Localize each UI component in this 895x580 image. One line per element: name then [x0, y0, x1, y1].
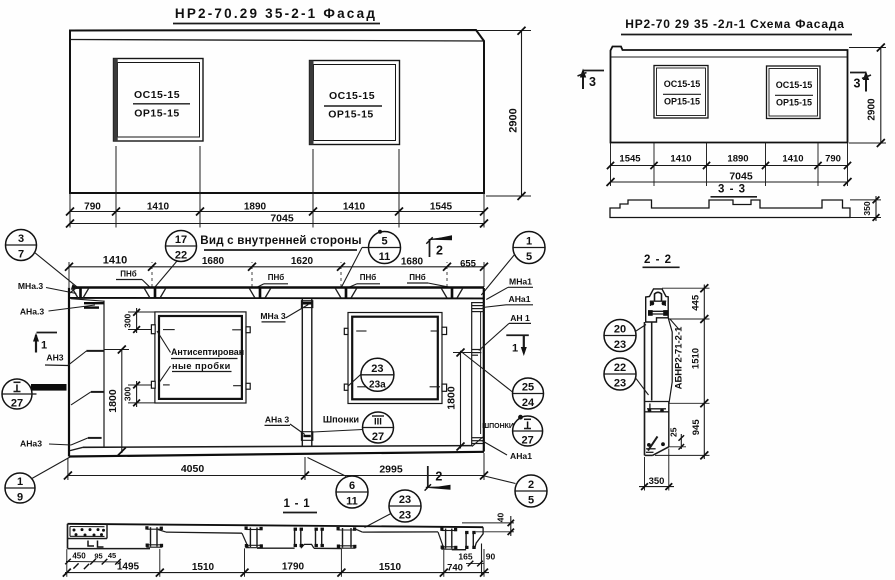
- svg-text:5: 5: [381, 236, 387, 248]
- svg-text:945: 945: [691, 419, 702, 436]
- svg-text:3: 3: [18, 233, 24, 245]
- svg-text:655: 655: [460, 259, 477, 270]
- svg-text:МНа 3: МНа 3: [260, 311, 286, 321]
- svg-text:350: 350: [649, 476, 665, 487]
- svg-text:27: 27: [372, 431, 384, 443]
- svg-text:6: 6: [349, 480, 355, 492]
- svg-text:23: 23: [614, 339, 626, 351]
- svg-text:1890: 1890: [727, 154, 748, 165]
- svg-text:ПНб: ПНб: [360, 273, 377, 282]
- svg-text:1790: 1790: [282, 562, 305, 573]
- svg-text:790: 790: [825, 154, 841, 165]
- svg-text:АН 1: АН 1: [510, 313, 530, 323]
- svg-text:АНа1: АНа1: [510, 451, 532, 461]
- svg-text:2: 2: [435, 470, 442, 484]
- svg-text:23: 23: [399, 510, 411, 522]
- svg-text:1510: 1510: [192, 562, 215, 573]
- svg-text:1: 1: [17, 476, 23, 488]
- svg-text:ПНб: ПНб: [268, 273, 285, 282]
- svg-text:ПНб: ПНб: [120, 270, 137, 279]
- svg-text:1800: 1800: [446, 386, 458, 410]
- svg-text:23: 23: [399, 494, 411, 506]
- svg-text:3 - 3: 3 - 3: [718, 184, 746, 196]
- svg-text:17: 17: [175, 234, 187, 246]
- svg-text:11: 11: [346, 496, 358, 508]
- svg-text:90: 90: [486, 552, 496, 562]
- svg-text:9: 9: [17, 492, 23, 504]
- svg-text:I: I: [16, 382, 19, 394]
- svg-text:350: 350: [862, 201, 872, 215]
- svg-text:450: 450: [72, 552, 86, 561]
- svg-text:ПНб: ПНб: [409, 273, 426, 282]
- svg-text:I: I: [526, 419, 529, 431]
- svg-text:ШПОНКИ: ШПОНКИ: [482, 423, 514, 430]
- svg-text:24: 24: [522, 397, 535, 409]
- svg-text:40: 40: [496, 513, 506, 523]
- svg-text:2 - 2: 2 - 2: [644, 254, 672, 266]
- svg-text:1510: 1510: [379, 562, 402, 573]
- svg-text:1680: 1680: [202, 256, 225, 267]
- svg-text:1: 1: [41, 340, 47, 352]
- svg-text:1410: 1410: [670, 154, 691, 165]
- svg-text:1: 1: [526, 236, 532, 248]
- svg-text:1510: 1510: [691, 348, 702, 369]
- svg-text:7: 7: [18, 249, 24, 261]
- svg-text:445: 445: [691, 294, 702, 311]
- svg-text:НР2-70.29 35-2-1 Фасад: НР2-70.29 35-2-1 Фасад: [175, 6, 377, 21]
- svg-text:III: III: [374, 417, 382, 428]
- svg-text:1680: 1680: [401, 257, 424, 268]
- svg-text:ные пробки: ные пробки: [172, 361, 231, 371]
- svg-text:3: 3: [854, 77, 861, 91]
- svg-text:АНа3: АНа3: [20, 439, 42, 449]
- svg-text:1800: 1800: [107, 389, 119, 413]
- svg-text:1410: 1410: [147, 202, 170, 213]
- svg-text:23: 23: [371, 363, 383, 375]
- svg-text:АБНР2-71-2-1: АБНР2-71-2-1: [674, 326, 685, 390]
- svg-text:АНа1: АНа1: [509, 294, 531, 304]
- svg-text:23: 23: [614, 378, 626, 390]
- svg-text:27: 27: [521, 435, 533, 447]
- svg-text:5: 5: [526, 251, 532, 263]
- svg-text:1: 1: [512, 343, 518, 355]
- svg-text:МНа.3: МНа.3: [18, 281, 44, 291]
- svg-text:ОР15-15: ОР15-15: [328, 109, 374, 121]
- svg-text:ОР15-15: ОР15-15: [134, 108, 180, 120]
- svg-text:1410: 1410: [782, 154, 803, 165]
- svg-text:1 - 1: 1 - 1: [283, 498, 310, 510]
- svg-text:300: 300: [123, 387, 133, 401]
- svg-text:2900: 2900: [867, 98, 878, 121]
- svg-text:2900: 2900: [508, 108, 520, 132]
- svg-text:ОС15-15: ОС15-15: [134, 89, 180, 101]
- svg-text:АНа.3: АНа.3: [20, 307, 45, 317]
- svg-text:23а: 23а: [369, 379, 386, 390]
- svg-text:790: 790: [84, 202, 101, 213]
- svg-text:ОС15-15: ОС15-15: [329, 90, 375, 102]
- svg-text:1495: 1495: [117, 562, 140, 573]
- svg-text:ОС15-15: ОС15-15: [664, 79, 701, 89]
- svg-text:22: 22: [614, 362, 626, 374]
- svg-text:45: 45: [108, 551, 116, 560]
- svg-text:АНа 3: АНа 3: [265, 415, 290, 425]
- svg-text:4050: 4050: [181, 463, 205, 475]
- svg-text:20: 20: [614, 324, 626, 336]
- svg-text:ОР15-15: ОР15-15: [664, 97, 700, 107]
- svg-text:1545: 1545: [430, 202, 453, 213]
- svg-text:Шпонки: Шпонки: [323, 415, 360, 425]
- svg-text:7045: 7045: [270, 213, 294, 225]
- svg-text:25: 25: [669, 427, 679, 437]
- svg-text:2995: 2995: [379, 464, 403, 476]
- svg-text:ОС15-15: ОС15-15: [776, 80, 813, 90]
- svg-text:27: 27: [11, 398, 23, 410]
- svg-text:ОР15-15: ОР15-15: [776, 98, 812, 108]
- svg-text:3: 3: [589, 75, 596, 89]
- svg-text:2: 2: [436, 244, 443, 258]
- svg-text:Вид с внутренней стороны: Вид с внутренней стороны: [200, 234, 361, 247]
- svg-text:1545: 1545: [619, 154, 641, 165]
- svg-text:740: 740: [447, 563, 463, 574]
- svg-text:Антисептирован: Антисептирован: [171, 347, 244, 357]
- svg-text:25: 25: [522, 382, 534, 394]
- svg-text:7045: 7045: [729, 171, 753, 183]
- svg-text:165: 165: [458, 552, 472, 562]
- svg-text:11: 11: [379, 251, 391, 263]
- svg-text:300: 300: [123, 313, 133, 327]
- svg-text:5: 5: [528, 495, 534, 507]
- svg-text:2: 2: [528, 479, 534, 491]
- svg-text:22: 22: [175, 250, 187, 262]
- svg-text:1620: 1620: [291, 256, 314, 267]
- svg-text:АН3: АН3: [46, 353, 63, 363]
- svg-text:МНа1: МНа1: [509, 276, 532, 286]
- svg-text:1890: 1890: [244, 202, 267, 213]
- svg-text:1410: 1410: [103, 255, 127, 267]
- svg-text:1410: 1410: [343, 202, 366, 213]
- svg-text:НР2-70 29 35 -2л-1 Схема Фасад: НР2-70 29 35 -2л-1 Схема Фасада: [625, 17, 844, 31]
